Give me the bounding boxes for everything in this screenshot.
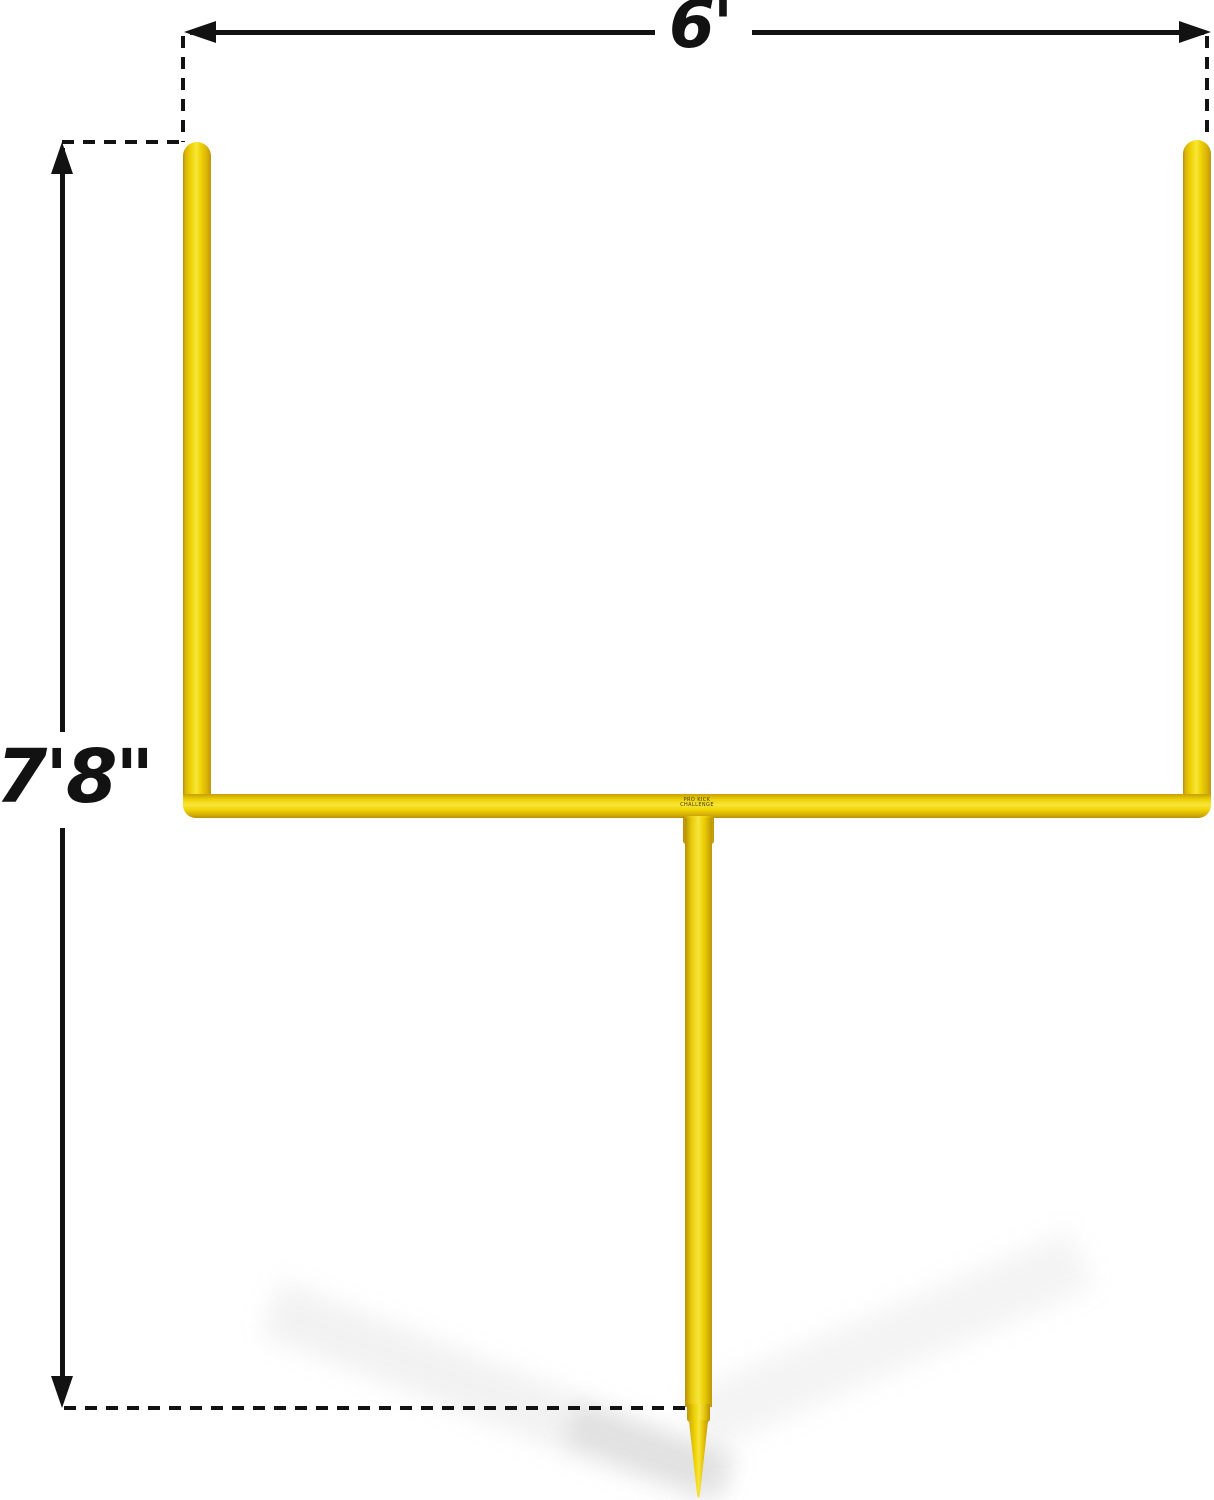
arrow-left-icon <box>184 21 216 43</box>
width-dim-line-right <box>752 30 1204 35</box>
crossbar-brand-label: PRO KICK CHALLENGE <box>670 795 724 810</box>
goal-right-upright <box>1183 140 1211 794</box>
height-dim-line-top <box>60 148 65 732</box>
ground-shadow-right <box>683 1230 1094 1451</box>
arrow-up-icon <box>51 142 73 174</box>
height-dimension-label: 7'8" <box>0 734 156 820</box>
goal-left-upright <box>183 142 211 794</box>
extension-line-top <box>62 140 183 144</box>
extension-line-right-upright <box>1205 36 1209 140</box>
goal-pole-collar <box>687 1404 710 1422</box>
arrow-down-icon <box>51 1376 73 1408</box>
extension-line-bottom <box>64 1406 686 1410</box>
extension-line-left-upright <box>181 36 185 142</box>
width-dim-line-left <box>190 30 655 35</box>
height-dim-line-bottom <box>60 828 65 1378</box>
width-dimension-label: 6' <box>634 0 766 64</box>
product-diagram: PRO KICK CHALLENGE 6' 7'8" <box>0 0 1214 1500</box>
goal-center-pole <box>685 818 712 1407</box>
